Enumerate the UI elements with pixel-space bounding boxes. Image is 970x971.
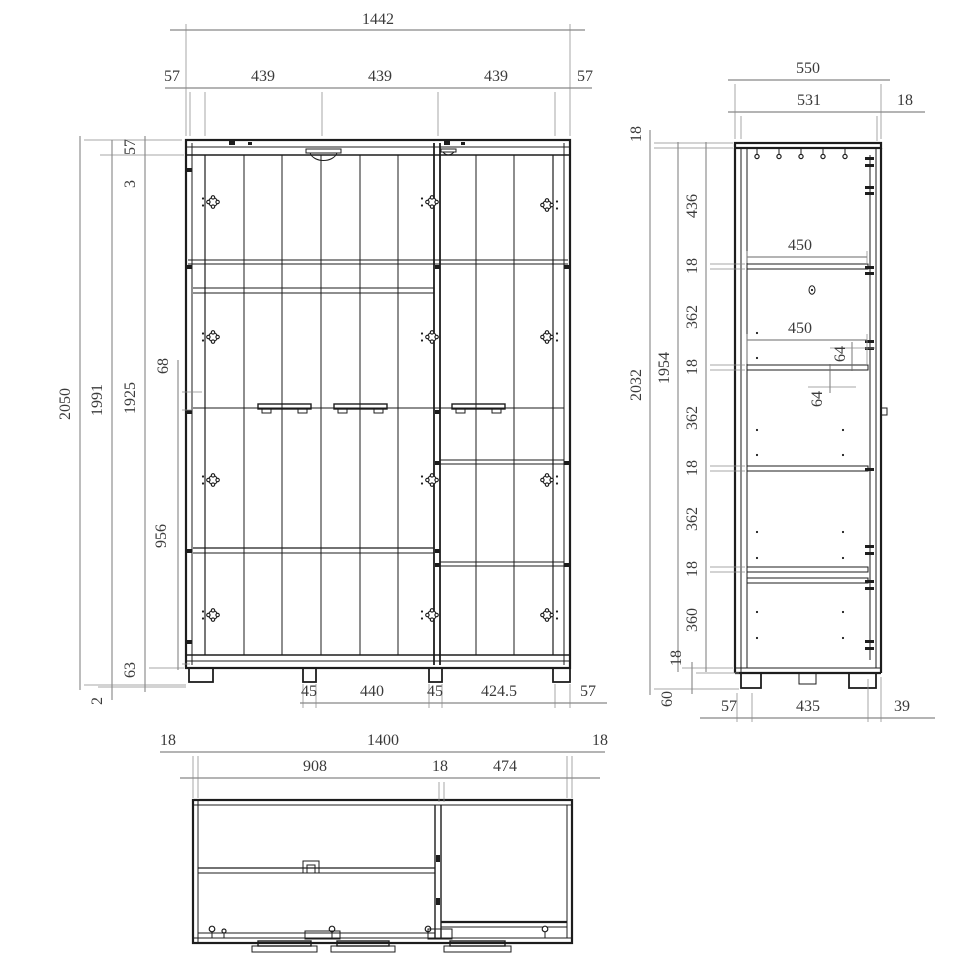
top-view-drawing — [193, 800, 572, 952]
dim-front-plinth63: 63 — [122, 662, 139, 678]
dim-side-seg362a: 362 — [684, 305, 701, 329]
front-view-drawing — [186, 140, 570, 682]
dim-side-shelf450a: 450 — [788, 237, 812, 254]
dim-front-lower956: 956 — [153, 524, 170, 548]
dim-side-seg362c: 362 — [684, 507, 701, 531]
dim-side-rail64a: 64 — [832, 346, 849, 362]
dim-side-b435: 435 — [796, 698, 820, 715]
dim-side-b57: 57 — [721, 698, 737, 715]
dim-top-width1400: 1400 — [367, 732, 399, 749]
dim-side-seg362b: 362 — [684, 406, 701, 430]
dim-front-top57: 57 — [122, 139, 139, 155]
dim-front-foot45l: 45 — [301, 683, 317, 700]
dim-side-h2032: 2032 — [628, 369, 645, 401]
dim-front-door4245: 424.5 — [481, 683, 517, 700]
dim-top-bay908: 908 — [303, 758, 327, 775]
dim-front-side-l: 57 — [164, 68, 180, 85]
wardrobe-three-view-drawing: 1442 57 439 439 439 57 2050 1991 2 57 3 … — [0, 0, 970, 971]
dim-front-side-r: 57 — [577, 68, 593, 85]
dim-side-depth531: 531 — [797, 92, 821, 109]
door-hinge-pins — [209, 926, 548, 938]
dim-side-seg18b: 18 — [684, 359, 701, 375]
dim-front-bay2: 439 — [368, 68, 392, 85]
dim-front-width-total: 1442 — [362, 11, 394, 28]
dim-side-seg436: 436 — [684, 194, 701, 218]
front-view-labels: 1442 57 439 439 439 57 2050 1991 2 57 3 … — [57, 11, 596, 705]
door-handles — [258, 404, 505, 413]
shelf-pins — [755, 148, 847, 159]
dim-side-seg360: 360 — [684, 608, 701, 632]
dim-top-div18: 18 — [432, 758, 448, 775]
dim-front-bay3: 439 — [484, 68, 508, 85]
dim-side-h1954: 1954 — [656, 352, 673, 384]
dim-side-leg60: 60 — [659, 691, 676, 707]
dim-side-seg18c: 18 — [684, 460, 701, 476]
top-view-labels: 18 1400 18 908 18 474 — [160, 732, 608, 775]
technical-drawing-canvas: 1442 57 439 439 439 57 2050 1991 2 57 3 … — [0, 0, 970, 971]
dim-side-rail64b: 64 — [809, 391, 826, 407]
dim-front-handle68: 68 — [155, 358, 172, 374]
dim-side-b39: 39 — [894, 698, 910, 715]
dim-side-top18: 18 — [628, 126, 645, 142]
dim-top-bay474: 474 — [493, 758, 517, 775]
dim-top-edge18r: 18 — [592, 732, 608, 749]
dim-top-edge18l: 18 — [160, 732, 176, 749]
dim-side-bottom18: 18 — [668, 650, 685, 666]
dim-front-gap3: 3 — [122, 180, 139, 188]
dim-front-bay1: 439 — [251, 68, 275, 85]
dim-side-seg18a: 18 — [684, 258, 701, 274]
dim-side-shelf450b: 450 — [788, 320, 812, 337]
dim-front-h1991: 1991 — [89, 384, 106, 416]
dim-front-gap2: 2 — [89, 697, 106, 705]
door-edge-rails — [252, 929, 511, 952]
top-view-dimensions — [160, 748, 605, 802]
dim-side-seg18d: 18 — [684, 561, 701, 577]
side-view-drawing — [735, 143, 887, 688]
screw-dots — [756, 332, 844, 639]
dim-side-depth550: 550 — [796, 60, 820, 77]
dim-front-h1925: 1925 — [122, 382, 139, 414]
dim-front-h2050: 2050 — [57, 388, 74, 420]
dim-front-foot45r: 45 — [427, 683, 443, 700]
dim-side-back18: 18 — [897, 92, 913, 109]
dim-front-edge57: 57 — [580, 683, 596, 700]
dim-front-span440: 440 — [360, 683, 384, 700]
